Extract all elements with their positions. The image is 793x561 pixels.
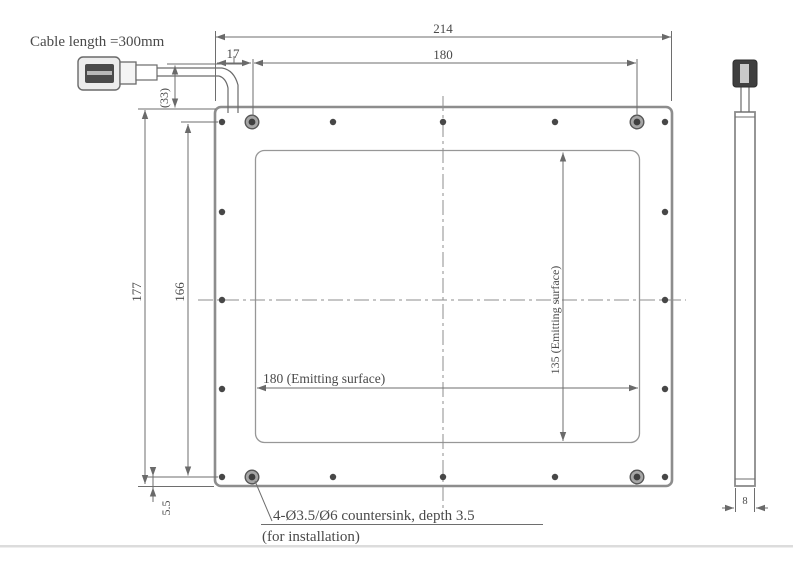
countersink-hole xyxy=(245,470,259,484)
mounting-hole xyxy=(219,119,225,125)
mounting-hole xyxy=(440,119,446,125)
countersink-hole xyxy=(630,470,644,484)
mounting-hole xyxy=(662,119,668,125)
technical-drawing-page: 214 180 17 (33) 177 166 xyxy=(0,0,793,561)
mounting-hole xyxy=(219,297,225,303)
dim-hole-pitch-width-label: 180 xyxy=(433,47,453,62)
dim-bottom-edge-offset: 5.5 xyxy=(153,468,173,516)
dim-edge-offset-label: 17 xyxy=(227,46,241,61)
countersink-note: 4-Ø3.5/Ø6 countersink, depth 3.5 (for in… xyxy=(255,481,543,545)
dim-emitting-width-label: 180 (Emitting surface) xyxy=(263,371,385,386)
strain-relief xyxy=(136,65,157,80)
dim-bottom-edge-offset-label: 5.5 xyxy=(159,501,173,516)
cable-connector-slot xyxy=(87,71,112,75)
dim-thickness: 8 xyxy=(722,488,768,512)
mounting-hole xyxy=(662,474,668,480)
mounting-hole xyxy=(219,386,225,392)
dim-cable-offset-label: (33) xyxy=(157,88,171,108)
mounting-hole xyxy=(552,119,558,125)
dim-hole-pitch-width: 180 xyxy=(253,47,637,116)
mounting-hole xyxy=(330,474,336,480)
mounting-hole xyxy=(219,474,225,480)
mounting-hole xyxy=(330,119,336,125)
mounting-hole xyxy=(662,209,668,215)
cable-length-note: Cable length =300mm xyxy=(30,34,165,50)
dim-emitting-height-label: 135 (Emitting surface) xyxy=(548,266,562,375)
side-view-body xyxy=(735,112,755,486)
mounting-hole xyxy=(219,209,225,215)
side-view-cable-neck xyxy=(741,86,749,112)
connector-barrel xyxy=(120,62,136,84)
dim-thickness-label: 8 xyxy=(742,496,747,507)
countersink-hole xyxy=(245,115,259,129)
dim-overall-width-label: 214 xyxy=(433,21,453,36)
front-view xyxy=(78,56,686,508)
dim-overall-height-label: 177 xyxy=(129,282,144,302)
mounting-hole xyxy=(662,386,668,392)
dim-edge-offset: 17 xyxy=(217,46,251,63)
countersink-hole xyxy=(630,115,644,129)
page-divider xyxy=(0,545,793,548)
dim-hole-pitch-height-label: 166 xyxy=(172,282,187,302)
mounting-hole xyxy=(440,474,446,480)
panel-dimension-drawing: 214 180 17 (33) 177 166 xyxy=(0,0,793,561)
side-view xyxy=(733,60,757,486)
side-view-connector-slot xyxy=(740,64,749,83)
mounting-hole xyxy=(552,474,558,480)
mounting-hole xyxy=(662,297,668,303)
countersink-note-line1: 4-Ø3.5/Ø6 countersink, depth 3.5 xyxy=(273,508,475,524)
countersink-note-line2: (for installation) xyxy=(262,529,360,545)
